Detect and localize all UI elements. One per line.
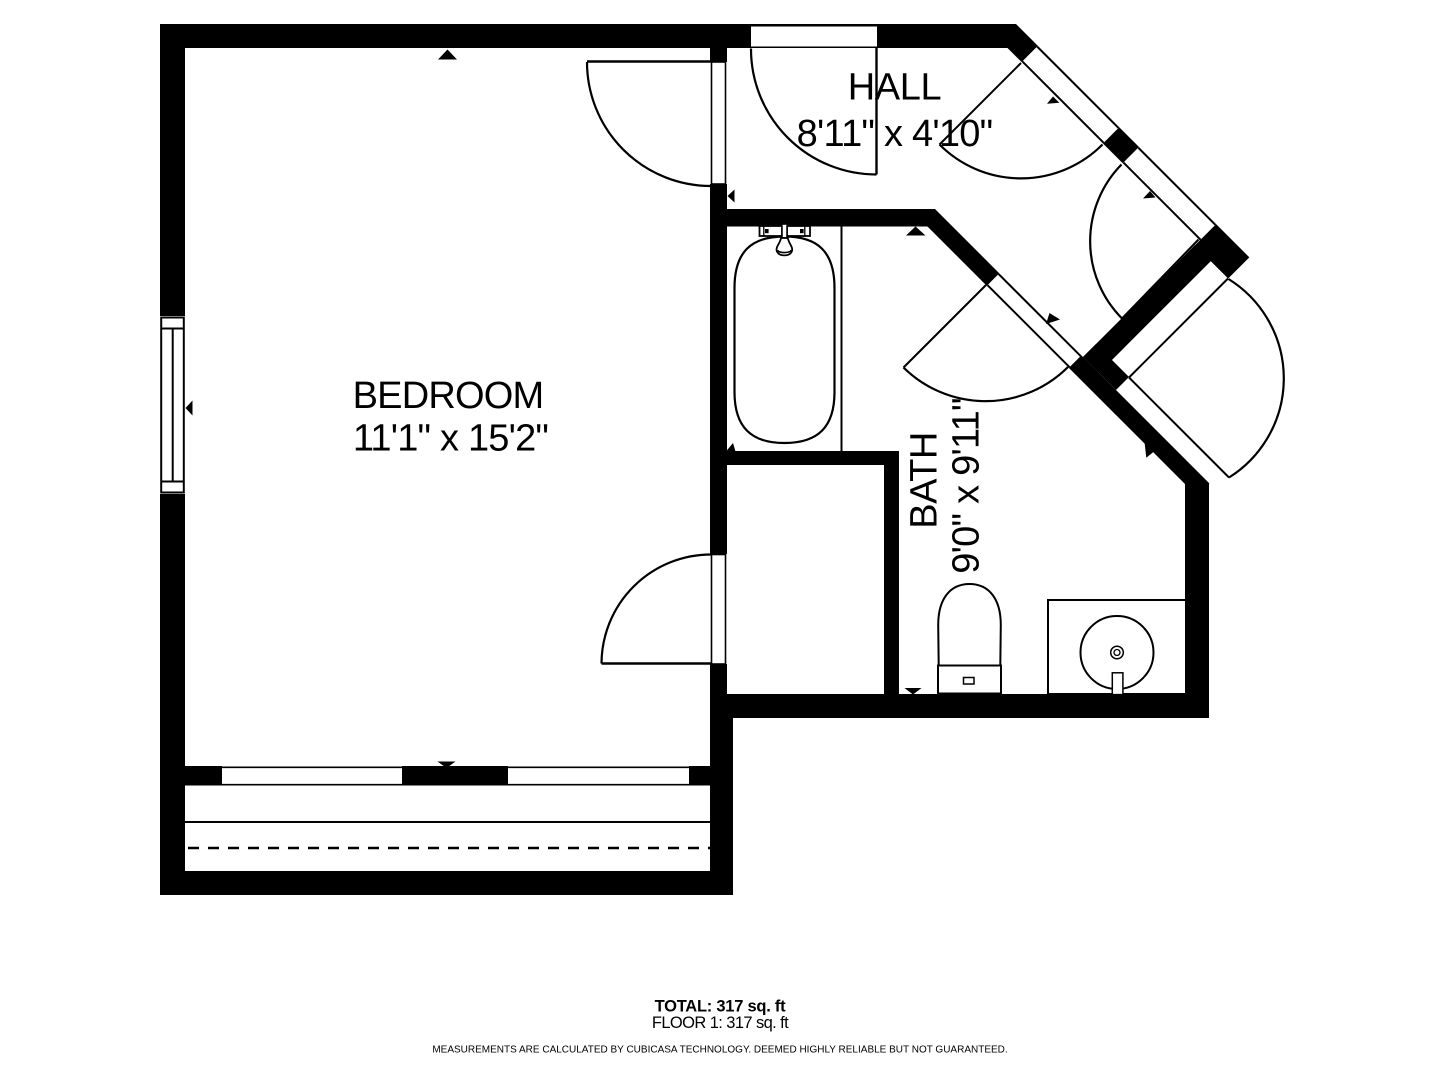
svg-text:11'1" x 15'2": 11'1" x 15'2" xyxy=(353,418,548,460)
svg-text:HALL: HALL xyxy=(848,67,941,109)
svg-text:BEDROOM: BEDROOM xyxy=(353,375,544,417)
svg-text:BATH: BATH xyxy=(904,432,946,529)
svg-text:8'11" x 4'10": 8'11" x 4'10" xyxy=(797,113,993,155)
svg-text:FLOOR 1: 317 sq. ft: FLOOR 1: 317 sq. ft xyxy=(652,1014,789,1032)
svg-text:MEASUREMENTS ARE CALCULATED BY: MEASUREMENTS ARE CALCULATED BY CUBICASA … xyxy=(432,1045,1007,1056)
svg-text:9'0" x 9'11": 9'0" x 9'11" xyxy=(946,398,988,573)
svg-text:TOTAL: 317 sq. ft: TOTAL: 317 sq. ft xyxy=(655,998,787,1016)
